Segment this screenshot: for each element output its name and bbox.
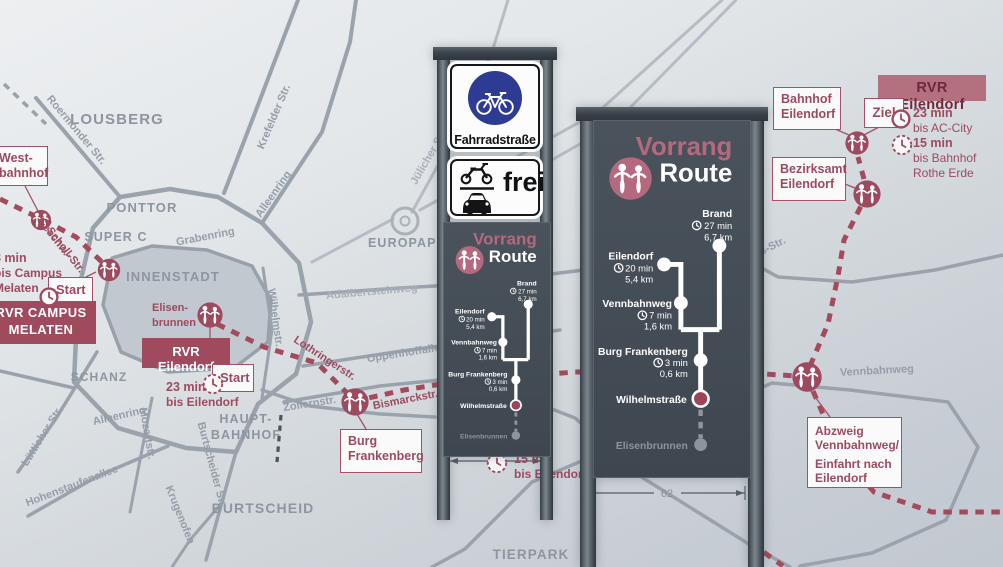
signage-map-visualization: LOUSBERG PONTTOR SUPER C INNENSTADT EURO… <box>0 0 1003 567</box>
mini-stop-burg: Burg Frankenberg <box>448 371 507 378</box>
rvr-eilendorf-center-label: RVR Eilendorf <box>158 344 214 374</box>
stop-dot-wilhelmstrasse <box>693 391 709 407</box>
stop-eilendorf-time: 20 min <box>625 263 653 273</box>
europaplatz-roundabout <box>392 208 418 234</box>
stop-vennbahnweg-time: 7 min <box>649 311 672 321</box>
street-hohenstaufenallee: Hohenstaufenallee <box>24 463 120 509</box>
stop-burg: Burg Frankenberg <box>598 347 688 358</box>
area-schanz: SCHANZ <box>71 370 128 384</box>
bezirksamt-line2: Eilendorf <box>780 177 838 192</box>
mini-stop-eilendorf-time: 20 min <box>466 316 485 323</box>
bahnhof-eilendorf-line1: Bahnhof <box>781 92 833 107</box>
marker-vennbahnweg-junction <box>792 362 821 391</box>
box-rvr-campus-melaten: RVR CAMPUS MELATEN <box>0 301 96 344</box>
time-campus: 8 min bis Campus Melaten <box>0 251 62 296</box>
box-westbahnhof: West- bahnhof <box>0 146 48 186</box>
stop-dot-eilendorf <box>657 258 671 272</box>
time-accity-min: 23 min <box>913 106 972 121</box>
marker-bahnhof-eilendorf <box>845 131 868 154</box>
left-sign: Fahrradstraße frei <box>433 47 557 520</box>
clock-icon-vennbahnweg <box>638 311 646 319</box>
box-bahnhof-eilendorf: Bahnhof Eilendorf <box>773 87 841 130</box>
right-sign: Vorrang Route Brand 27 min 6,7 km Eilend… <box>576 107 768 567</box>
stop-dot-vennbahnweg <box>674 296 688 310</box>
box-westbahnhof-line1: West- <box>0 151 40 166</box>
marker-elisenbrunnen <box>197 302 222 327</box>
route-diagram: Vorrang Route Brand 27 min 6,7 km Eilend… <box>594 121 750 477</box>
right-sign-route-panel: Vorrang Route Brand 27 min 6,7 km Eilend… <box>593 120 751 478</box>
mini-stop-eilendorf: Eilendorf <box>455 308 485 315</box>
title-vorrang: Vorrang <box>636 133 732 161</box>
stop-brand: Brand <box>702 209 732 220</box>
street-roermonder: Roermonder Str. <box>44 93 109 167</box>
marker-superc <box>98 259 120 281</box>
fahrradstrasse-label: Fahrradstraße <box>447 133 543 147</box>
stop-eilendorf: Eilendorf <box>608 252 653 263</box>
box-rvr-campus-line2: MELATEN <box>0 322 89 339</box>
fahrradstrasse-sign: Fahrradstraße <box>447 61 543 152</box>
time-eilendorf-min: 23 min <box>166 380 239 395</box>
stop-dot-burg <box>694 353 708 367</box>
bezirksamt-line1: Bezirksamt <box>780 162 838 177</box>
stop-burg-time: 3 min <box>665 358 688 368</box>
area-super-c: SUPER C <box>84 230 147 244</box>
mini-stop-burg-time: 3 min <box>492 379 508 386</box>
burg-frankenberg-line1: Burg <box>348 434 414 449</box>
abzweig-line4: Eilendorf <box>815 471 894 485</box>
time-accity-line2: bis AC-City <box>913 121 972 136</box>
area-innenstadt: INNENSTADT <box>126 269 220 284</box>
right-sign-top-cap <box>576 107 768 121</box>
mini-title-vorrang: Vorrang <box>473 229 537 248</box>
stop-dot-elisenbrunnen <box>694 438 707 451</box>
mini-stop-vennbahnweg: Vennbahnweg <box>451 340 497 347</box>
time-campus-line2: bis Campus <box>0 266 62 281</box>
mini-title-route: Route <box>489 247 537 266</box>
left-sign-top-cap <box>433 47 557 60</box>
time-ac-city: 23 min bis AC-City <box>913 106 972 136</box>
abzweig-line1: Abzweig <box>815 424 894 438</box>
time-rothe-line3: Rothe Erde <box>913 166 976 181</box>
area-hauptbahnhof-2: BAHNHOF <box>211 428 281 442</box>
stop-elisenbrunnen: Elisenbrunnen <box>616 441 688 452</box>
street-adalbertsteinweg: Adalbertsteinweg <box>326 282 418 302</box>
bahnhof-eilendorf-line2: Eilendorf <box>781 107 833 122</box>
street-vennbahnweg: Vennbahnweg <box>840 363 914 379</box>
street-zollernstr: Zollernstr. <box>282 394 336 414</box>
mini-stop-burg-dist: 0,6 km <box>489 386 508 393</box>
box-bezirksamt: Bezirksamt Eilendorf <box>772 157 846 201</box>
area-ponttor: PONTTOR <box>106 200 177 215</box>
ziel-label: Ziel <box>872 105 895 120</box>
time-rothe-line2: bis Bahnhof <box>913 151 976 166</box>
time-rothe-erde: 15 min bis Bahnhof Rothe Erde <box>913 136 976 181</box>
time-campus-min: 8 min <box>0 251 62 266</box>
mini-stop-brand: Brand <box>517 280 537 287</box>
clock-icon-brand <box>692 221 700 229</box>
time-eilendorf-line2: bis Eilendorf <box>166 395 239 410</box>
street-alleenring-ne: Alleenring <box>253 169 294 220</box>
burg-frankenberg-line2: Frankenberg <box>348 449 414 464</box>
box-ziel: Ziel <box>864 98 904 128</box>
box-abzweig: Abzweig Vennbahnweg/ Einfahrt nach Eilen… <box>807 417 902 488</box>
street-luetticher: Lütticher Str. <box>19 404 65 468</box>
box-burg-frankenberg: Burg Frankenberg <box>340 429 422 473</box>
street-grabenring: Grabenring <box>175 226 235 249</box>
mini-stop-brand-time: 27 min <box>518 288 537 295</box>
stop-vennbahnweg-dist: 1,6 km <box>644 322 672 332</box>
frei-sign: frei <box>447 156 543 219</box>
stop-vennbahnweg: Vennbahnweg <box>602 299 672 310</box>
area-tierpark: TIERPARK <box>493 547 570 562</box>
mini-stop-eilendorf-dist: 5,4 km <box>466 324 485 331</box>
box-rvr-campus-line1: RVR CAMPUS <box>0 305 89 322</box>
frei-label: frei <box>503 167 545 198</box>
stop-brand-time: 27 min <box>704 221 732 231</box>
area-hauptbahnhof-1: HAUPT- <box>219 412 272 426</box>
marker-bezirksamt <box>853 180 880 207</box>
route-eilendorf-link <box>858 157 864 179</box>
mini-route-icon-circle <box>456 246 484 274</box>
stop-burg-dist: 0,6 km <box>660 369 688 379</box>
time-rothe-min: 15 min <box>913 136 976 151</box>
area-lousberg: LOUSBERG <box>70 111 164 128</box>
stop-dot-brand <box>712 239 726 253</box>
route-diagram-mini: Vorrang Route Brand 27 min 6,7 km Eilend… <box>444 223 550 456</box>
abzweig-line2: Vennbahnweg/ <box>815 438 894 452</box>
poi-elisenbrunnen-1: Elisen- <box>152 302 188 314</box>
clock-icon-burg <box>654 358 662 366</box>
stop-wilhelmstrasse: Wilhelmstraße <box>616 395 687 406</box>
marker-burg-frankenberg <box>341 388 368 415</box>
box-westbahnhof-line2: bahnhof <box>0 166 40 181</box>
mini-stop-wilhelmstrasse: Wilhelmstraße <box>460 403 507 410</box>
abzweig-line3: Einfahrt nach <box>815 457 894 471</box>
mini-stop-vennbahnweg-dist: 1,6 km <box>478 355 497 362</box>
street-krugenofen: Krugenofen <box>163 484 197 546</box>
title-route: Route <box>660 160 733 188</box>
route-icon-circle <box>609 157 651 199</box>
time-bis-eilendorf: 23 min bis Eilendorf <box>166 380 239 410</box>
left-sign-route-panel: Vorrang Route Brand 27 min 6,7 km Eilend… <box>443 222 551 457</box>
mini-stop-vennbahnweg-time: 7 min <box>482 348 498 355</box>
poi-elisenbrunnen-2: brunnen <box>152 317 196 329</box>
stop-eilendorf-dist: 5,4 km <box>625 275 653 285</box>
time-campus-line3: Melaten <box>0 281 62 296</box>
road-schanz-west <box>0 371 74 388</box>
clock-icon-eilendorf-stop <box>614 264 622 272</box>
mini-stop-elisenbrunnen: Elisenbrunnen <box>460 433 507 440</box>
